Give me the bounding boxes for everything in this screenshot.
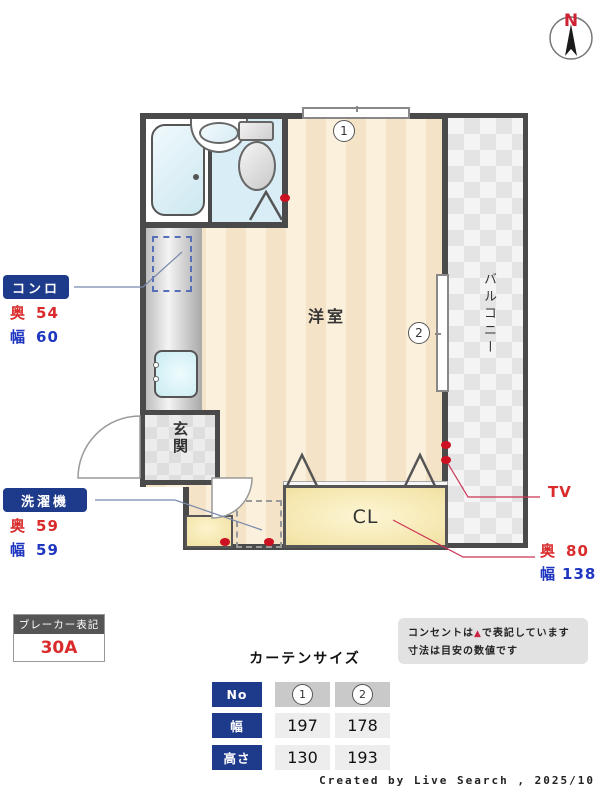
outlet-icon <box>264 538 274 546</box>
stove-width: 幅60 <box>10 326 59 347</box>
curtain-width-1: 197 <box>275 713 330 738</box>
width-label: 幅 <box>10 328 26 346</box>
curtain-height-2: 193 <box>335 745 390 770</box>
curtain-width-2: 178 <box>335 713 390 738</box>
outlet-legend-icon: ▲ <box>474 629 482 639</box>
curtain-row-height-label: 高さ <box>212 745 262 770</box>
washer-badge: 洗濯機 <box>3 488 87 512</box>
width-label: 幅 <box>540 565 556 583</box>
inner-door-swing-icon <box>212 478 252 518</box>
entry-door-swing-icon <box>78 416 140 478</box>
curtain-col-2: 2 <box>335 682 390 707</box>
tv-leader-line <box>447 462 540 497</box>
breaker-box: ブレーカー表記 30A <box>13 614 105 662</box>
curtain-table-title: カーテンサイズ <box>225 648 385 668</box>
depth-value: 80 <box>566 542 589 560</box>
curtain-col-2-num: 2 <box>359 688 366 701</box>
closet-size-leader-line <box>393 520 535 557</box>
closet-door-icon <box>287 455 317 486</box>
curtain-col-1-num: 1 <box>299 688 306 701</box>
depth-value: 59 <box>36 517 59 535</box>
width-value: 138 <box>562 565 596 583</box>
depth-label: 奥 <box>10 304 26 322</box>
note-text: で表記しています <box>482 628 570 639</box>
curtain-col-no: No <box>212 682 262 707</box>
washer-badge-label: 洗濯機 <box>21 491 69 510</box>
outlet-icon <box>280 194 290 202</box>
depth-label: 奥 <box>540 542 556 560</box>
width-value: 59 <box>36 541 59 559</box>
bathroom-door-icon <box>250 192 282 220</box>
closet-depth: 奥80 <box>540 540 589 561</box>
curtain-col-1: 1 <box>275 682 330 707</box>
closet-width: 幅138 <box>540 563 596 584</box>
stove-badge-label: コンロ <box>12 278 60 297</box>
breaker-value: 30A <box>14 634 104 662</box>
stove-leader-line <box>74 252 182 287</box>
width-label: 幅 <box>10 541 26 559</box>
washer-width: 幅59 <box>10 539 59 560</box>
tv-label: TV <box>548 483 572 501</box>
depth-label: 奥 <box>10 517 26 535</box>
note-text: 寸法は目安の数値です <box>408 646 518 657</box>
credit-text: Created by Live Search , 2025/10 <box>0 774 595 787</box>
outlet-icon <box>441 456 451 464</box>
note-text: コンセントは <box>408 628 474 639</box>
breaker-title: ブレーカー表記 <box>14 615 104 634</box>
legend-note: コンセントは▲で表記しています 寸法は目安の数値です <box>398 618 588 664</box>
width-value: 60 <box>36 328 59 346</box>
stove-depth: 奥54 <box>10 302 59 323</box>
curtain-row-width-label: 幅 <box>212 713 262 738</box>
curtain-height-1: 130 <box>275 745 330 770</box>
depth-value: 54 <box>36 304 59 322</box>
washer-depth: 奥59 <box>10 515 59 536</box>
outlet-icon <box>220 538 230 546</box>
outlet-icon <box>441 441 451 449</box>
plan-symbols-overlay <box>0 0 600 800</box>
stove-badge: コンロ <box>3 275 69 299</box>
closet-door-icon <box>405 455 435 486</box>
